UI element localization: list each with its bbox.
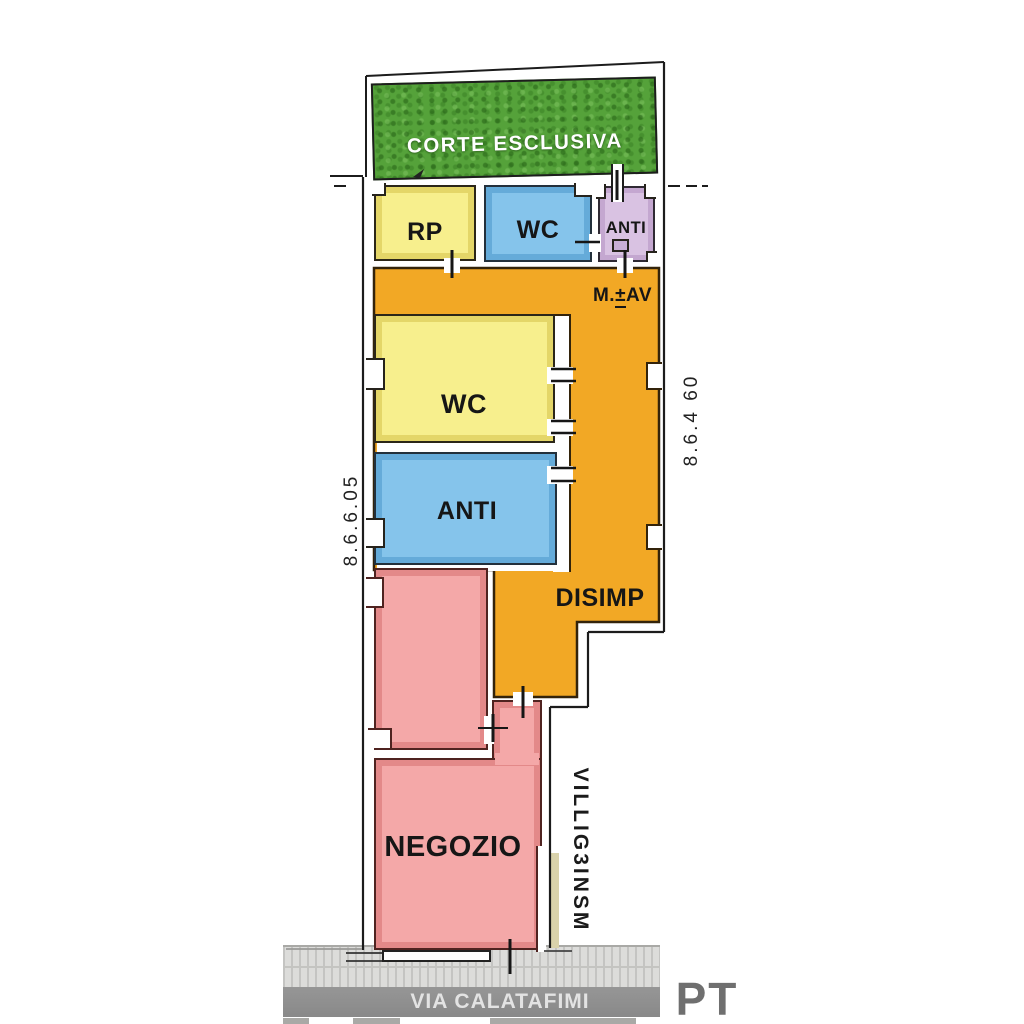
room-label-wc-top: WC: [498, 216, 578, 245]
plus-minus-symbol: ±: [615, 285, 626, 308]
floor-plan: CORTE ESCLUSIVA: [0, 0, 1024, 1024]
dimension-left: 8.6.6.05: [341, 470, 363, 570]
room-label-rp: RP: [395, 218, 455, 247]
street-name: VIA CALATAFIMI: [380, 990, 620, 1014]
mav-annotation: M.±AV: [560, 285, 652, 307]
mav-prefix: M.: [593, 285, 615, 306]
mav-suffix: AV: [626, 285, 652, 306]
room-label-anti-main: ANTI: [417, 497, 517, 526]
door-marks: [452, 170, 625, 742]
dimension-right: 8.6.4 60: [681, 370, 703, 470]
room-label-wc-main: WC: [424, 389, 504, 420]
storefront-entrance: [286, 939, 572, 974]
room-label-disimp: DISIMP: [540, 584, 660, 613]
property-boundary: [330, 62, 708, 186]
north-arrow: [413, 169, 424, 178]
room-label-anti-top: ANTI: [596, 219, 656, 238]
floor-tag: PT: [672, 972, 742, 1024]
room-label-negozio: NEGOZIO: [373, 831, 533, 864]
side-street-text: VILLIG3INSM: [568, 765, 592, 935]
